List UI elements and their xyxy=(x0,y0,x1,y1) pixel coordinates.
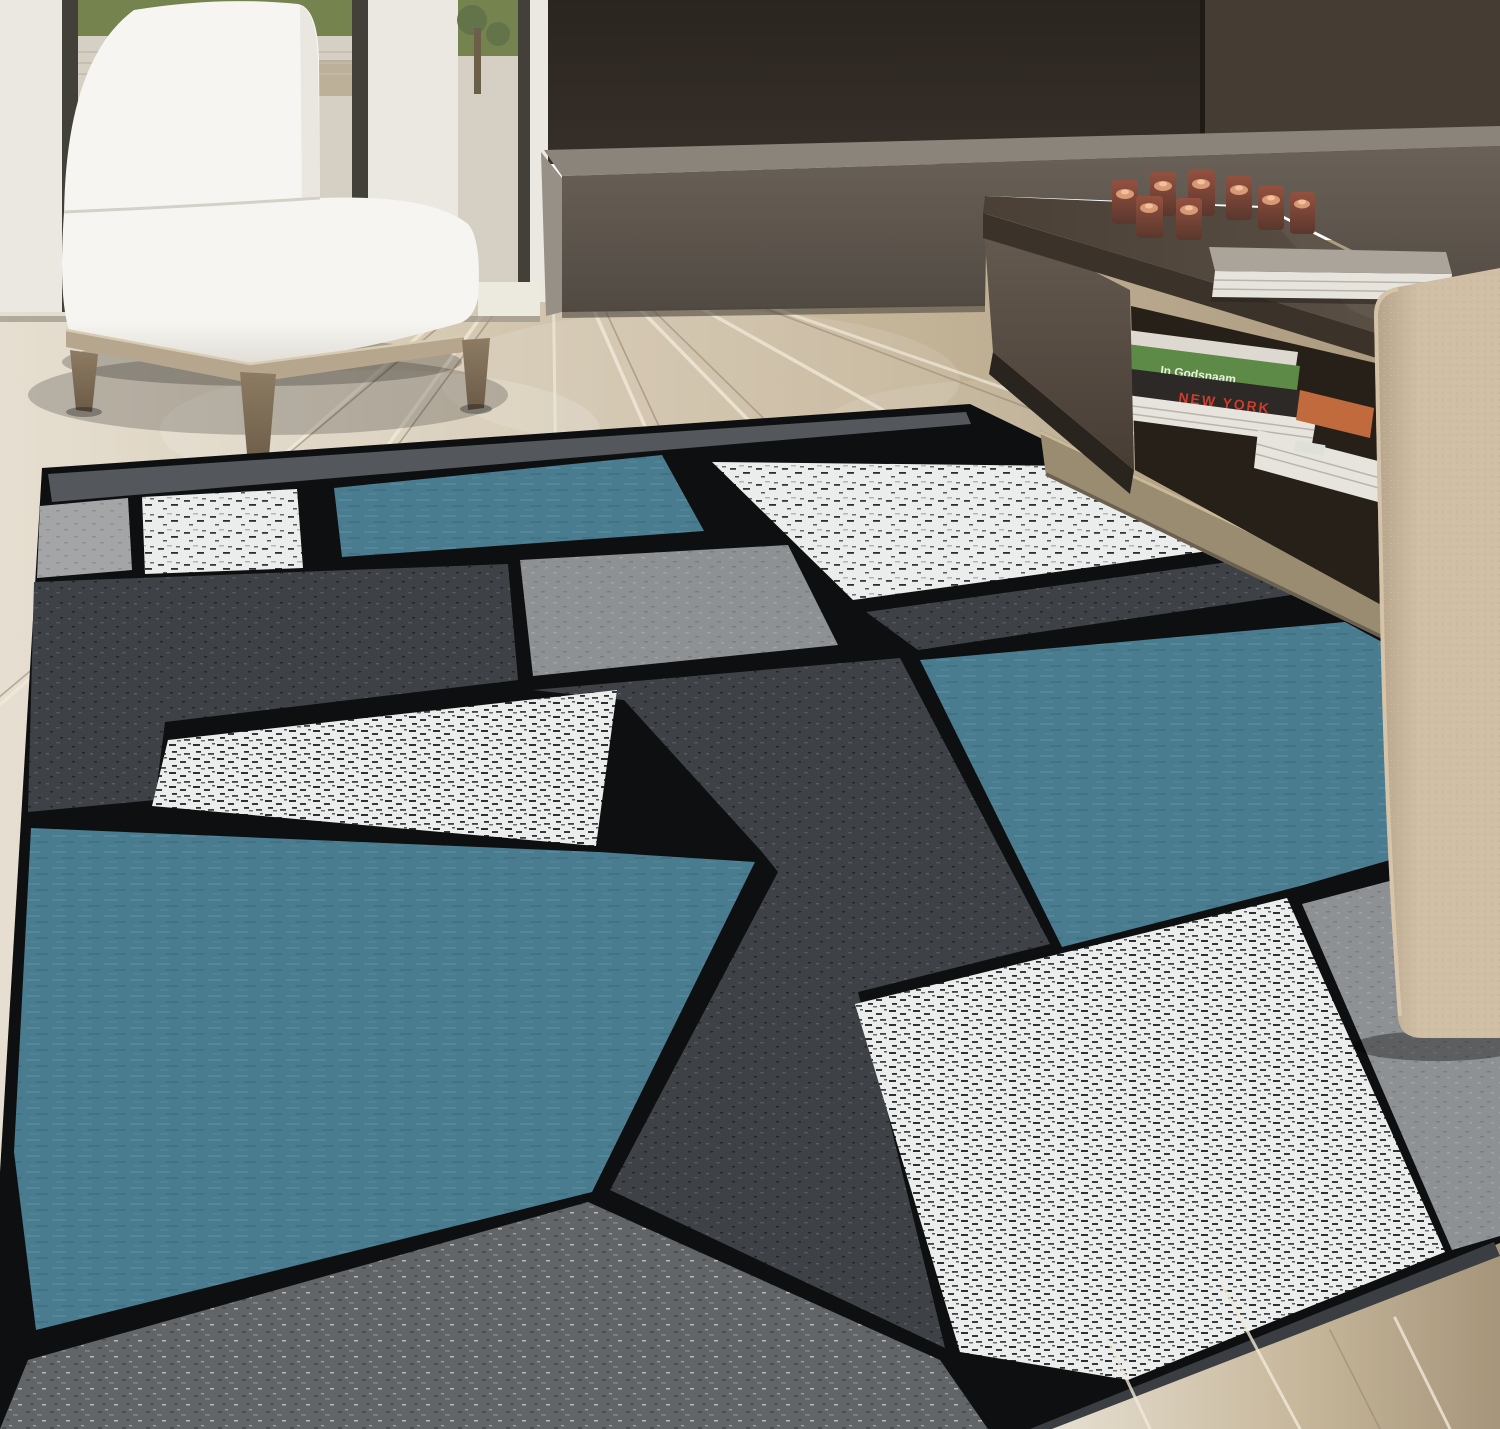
door-frame xyxy=(518,0,532,300)
candle xyxy=(1226,176,1252,220)
living-room-photo: In Godsnaam NEW YORK xyxy=(0,0,1500,1429)
candle xyxy=(1112,180,1138,224)
candle xyxy=(1176,198,1202,240)
rug-block-lightgray xyxy=(37,498,132,578)
door-sill xyxy=(478,282,540,316)
leg-shadow xyxy=(460,404,492,414)
candle xyxy=(1258,186,1284,230)
tree-trunk xyxy=(474,28,481,94)
scene-canvas: In Godsnaam NEW YORK xyxy=(0,0,1500,1429)
rug-block-white-small xyxy=(142,489,303,574)
foliage xyxy=(486,22,510,46)
left-wall xyxy=(0,0,70,312)
wall-seam xyxy=(1200,0,1205,140)
leg-shadow xyxy=(66,407,102,417)
candle xyxy=(1290,192,1315,234)
wall-panel xyxy=(1205,0,1500,136)
foliage xyxy=(457,5,487,35)
candle xyxy=(1136,196,1163,238)
